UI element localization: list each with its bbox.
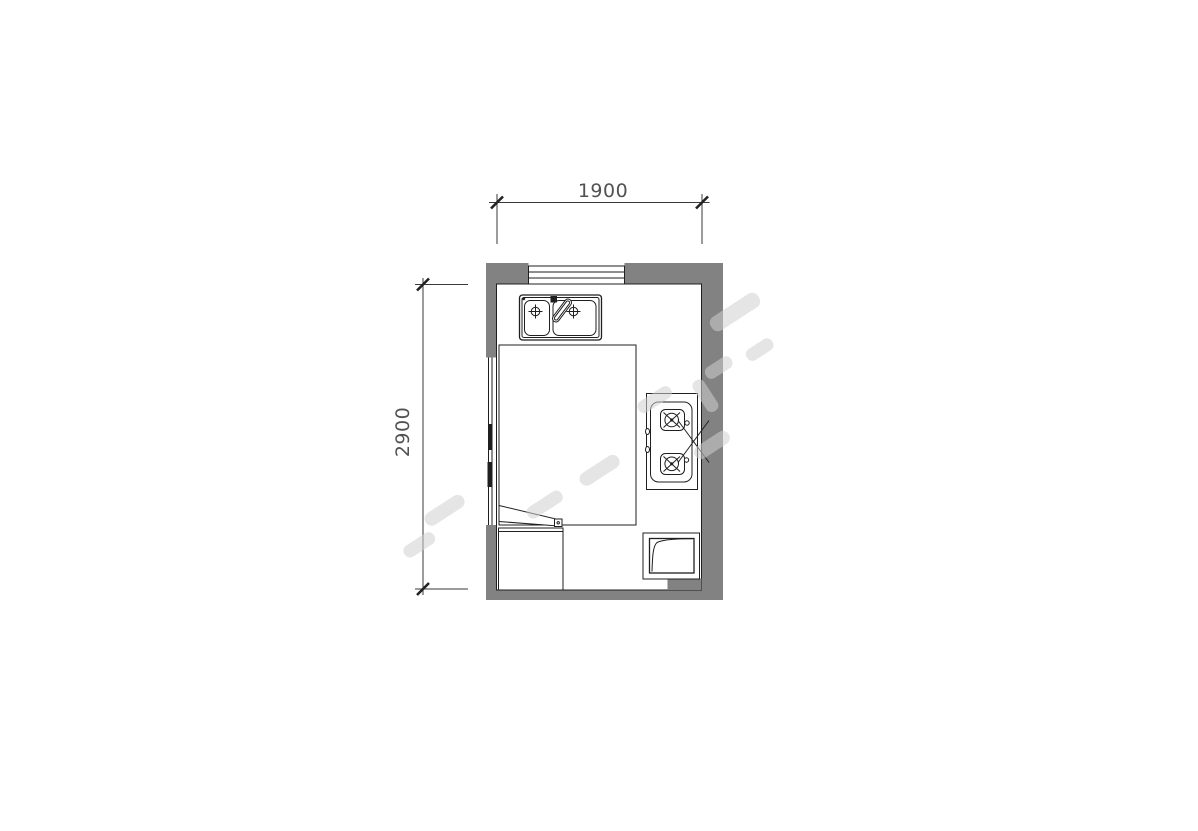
floor-plan-drawing: 1900 2900 <box>0 0 1198 831</box>
wall-left-upper <box>486 263 497 358</box>
dimension-width-label: 1900 <box>578 180 628 202</box>
dimension-width: 1900 <box>489 180 710 244</box>
soap-dot <box>522 297 525 300</box>
wall-notch <box>668 579 702 591</box>
dimension-height: 2900 <box>392 278 468 595</box>
window-icon <box>529 266 625 284</box>
floor-plan-page: 1900 2900 <box>0 0 1198 831</box>
door-track-mark-upper <box>488 424 492 450</box>
base-cabinet <box>499 528 564 590</box>
wall-bottom <box>486 590 723 600</box>
dimension-height-label: 2900 <box>392 407 414 457</box>
wall-left-lower <box>486 525 497 600</box>
appliance-with-curve-icon <box>643 533 700 579</box>
counter-island <box>499 345 636 525</box>
door-opening-icon <box>488 358 493 526</box>
stove-counter <box>647 394 698 490</box>
window-frame <box>529 266 625 284</box>
double-basin-sink-icon <box>520 295 602 340</box>
door-track-mark-lower <box>488 462 492 487</box>
